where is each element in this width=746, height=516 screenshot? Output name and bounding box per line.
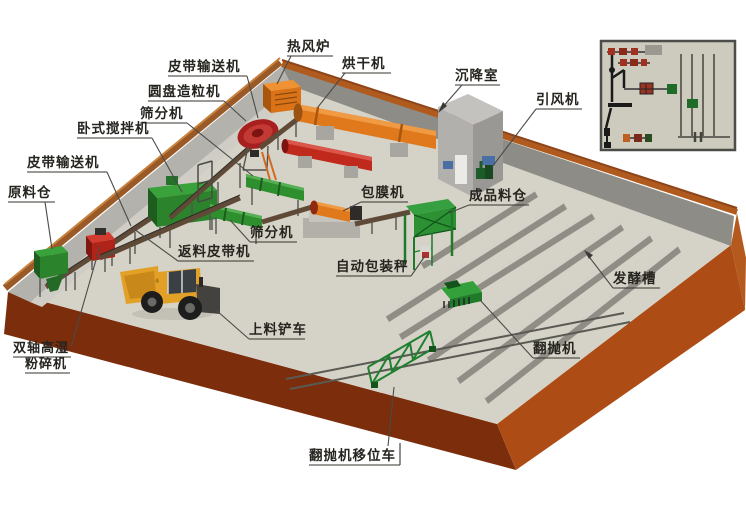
scene-svg: 皮带输送机 热风炉 烘干机 圆盘造粒机 筛分机 卧式搅拌机: [0, 0, 746, 516]
label-text: 粉碎机: [25, 356, 67, 372]
label-text: 自动包装秤: [336, 258, 409, 275]
label-text: 筛分机: [250, 224, 294, 241]
label-text: 包膜机: [361, 184, 405, 201]
label-text: 发酵槽: [612, 270, 657, 287]
plan-inset: [601, 41, 735, 150]
label-raw-material-bin: 原料仓: [8, 184, 55, 249]
label-text: 卧式搅拌机: [77, 120, 150, 137]
label-text: 上料铲车: [249, 321, 307, 338]
label-text: 皮带输送机: [27, 154, 100, 171]
label-text: 烘干机: [342, 55, 386, 72]
label-text: 热风炉: [287, 38, 331, 55]
settling-chamber: [438, 94, 503, 197]
label-text: 成品料仓: [469, 187, 527, 204]
label-text: 返料皮带机: [178, 243, 251, 260]
label-text: 圆盘造粒机: [148, 83, 221, 100]
label-text: 原料仓: [8, 184, 52, 201]
label-text: 筛分机: [140, 105, 184, 122]
label-text: 引风机: [536, 91, 580, 108]
label-text: 皮带输送机: [168, 58, 241, 75]
label-text: 翻抛机移位车: [309, 447, 396, 464]
label-text: 双轴高湿: [13, 340, 69, 356]
label-text: 翻抛机: [533, 340, 577, 357]
label-text: 沉降室: [455, 67, 499, 84]
plant-layout-diagram: 皮带输送机 热风炉 烘干机 圆盘造粒机 筛分机 卧式搅拌机: [0, 0, 746, 516]
